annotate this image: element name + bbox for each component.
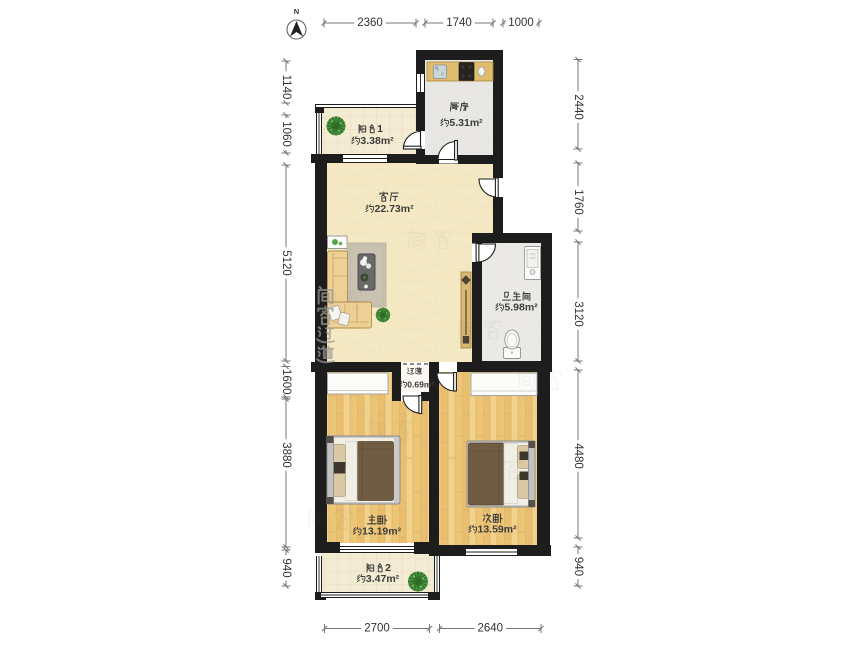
- svg-text:1: 1: [377, 123, 383, 135]
- svg-text:3880: 3880: [280, 442, 292, 468]
- svg-text:3.38m²: 3.38m²: [360, 135, 394, 147]
- svg-text:1740: 1740: [446, 17, 472, 29]
- svg-text:5.31m²: 5.31m²: [449, 117, 483, 129]
- svg-text:0.69m²: 0.69m²: [407, 380, 434, 390]
- svg-text:2360: 2360: [357, 17, 383, 29]
- svg-text:2640: 2640: [477, 623, 503, 635]
- svg-text:1000: 1000: [508, 17, 534, 29]
- svg-text:940: 940: [572, 557, 584, 576]
- svg-text:13.19m²: 13.19m²: [362, 526, 402, 538]
- svg-text:N: N: [294, 7, 299, 16]
- svg-text:5120: 5120: [280, 250, 292, 276]
- svg-text:1760: 1760: [572, 189, 584, 215]
- svg-text:5.98m²: 5.98m²: [504, 302, 538, 314]
- svg-text:4480: 4480: [572, 443, 584, 469]
- svg-text:1140: 1140: [280, 75, 292, 100]
- svg-text:22.73m²: 22.73m²: [375, 203, 415, 215]
- svg-text:1600: 1600: [280, 369, 292, 395]
- svg-text:2700: 2700: [364, 623, 390, 635]
- svg-text:1060: 1060: [280, 121, 292, 147]
- svg-text:13.59m²: 13.59m²: [478, 524, 518, 536]
- svg-text:940: 940: [280, 558, 292, 577]
- svg-text:3.47m²: 3.47m²: [366, 573, 400, 585]
- svg-text:3120: 3120: [572, 301, 584, 327]
- svg-text:2440: 2440: [572, 94, 584, 120]
